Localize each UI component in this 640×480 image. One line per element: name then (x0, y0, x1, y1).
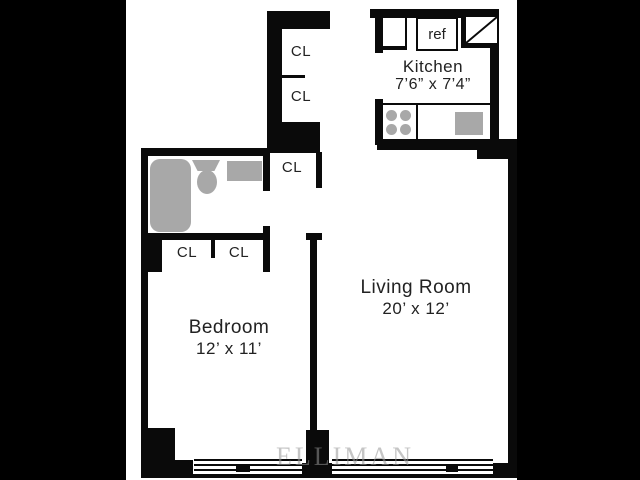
kitchen-label: Kitchen 7’6” x 7’4” (375, 57, 491, 94)
closet-label-upper-2: CL (286, 89, 316, 105)
toilet-bowl (197, 170, 217, 194)
stove (383, 103, 418, 139)
wall-hall-closet-right (316, 152, 322, 188)
wall-bathroom-top (141, 148, 270, 156)
wall-bottom (141, 474, 517, 478)
kitchen-counter (416, 103, 490, 139)
bedroom-name: Bedroom (150, 317, 308, 339)
wall-kitchen-bottom (377, 139, 493, 150)
wall-closet-left (267, 29, 282, 153)
wall-bedroom-closet-divider (211, 240, 215, 258)
bedroom-dims: 12’ x 11’ (150, 339, 308, 359)
wall-bottom-left-block (141, 428, 175, 478)
wall-kitchen-left-upper (375, 18, 383, 53)
bathtub (150, 159, 191, 232)
wall-closet-divider (282, 75, 305, 78)
watermark-text: ELLIMAN (240, 442, 450, 472)
wall-bottom-right-block (493, 463, 517, 478)
wall-living-left (310, 240, 317, 435)
stove-burner-icon (386, 110, 397, 121)
diagonal-line-icon (466, 17, 497, 43)
refrigerator: ref (416, 17, 458, 51)
living-room-name: Living Room (330, 277, 502, 299)
bedroom-label: Bedroom 12’ x 11’ (150, 317, 308, 359)
kitchen-cabinet (383, 18, 407, 50)
bathroom-sink (227, 161, 262, 181)
wall-bathroom-right-upper (263, 148, 270, 191)
wall-closet-top (267, 11, 330, 29)
kitchen-name: Kitchen (375, 57, 491, 76)
closet-label-bed-right: CL (224, 245, 254, 261)
stove-burner-icon (400, 110, 411, 121)
stove-burner-icon (400, 124, 411, 135)
living-room-dims: 20’ x 12’ (330, 299, 502, 319)
closet-label-bed-left: CL (172, 245, 202, 261)
wall-closet-bottom-block (282, 122, 320, 153)
closet-label-upper-1: CL (286, 44, 316, 60)
wall-kitchen-step (477, 139, 517, 159)
closet-label-hall: CL (277, 160, 307, 176)
stove-burner-icon (386, 124, 397, 135)
living-room-label: Living Room 20’ x 12’ (330, 277, 502, 319)
kitchen-sink (455, 112, 483, 135)
refrigerator-label: ref (428, 26, 446, 43)
corner-cabinet (461, 17, 497, 48)
floorplan-image: ref Kitchen 7’6” x 7’4” Living Room 20’ … (0, 0, 640, 480)
wall-bedroom-closet-top (141, 233, 270, 240)
wall-living-left-cap (306, 233, 322, 240)
wall-living-right (508, 152, 517, 463)
wall-bedroom-closet-jamb (141, 240, 162, 272)
kitchen-dims: 7’6” x 7’4” (375, 76, 491, 94)
